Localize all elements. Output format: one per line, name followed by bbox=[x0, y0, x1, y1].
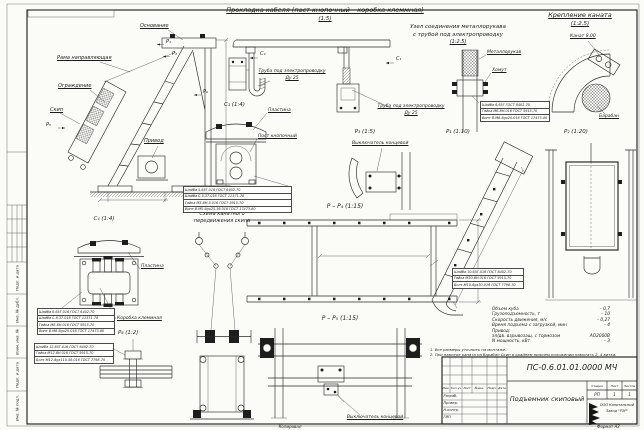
stamp-col-doc: №док. bbox=[475, 387, 485, 390]
view-title-p1: Р₁ (1:10) bbox=[446, 130, 470, 136]
doc-title: Подъемник скиповый bbox=[510, 396, 584, 403]
rope-mount-view bbox=[548, 41, 620, 114]
stage-col-listov: Листов bbox=[624, 385, 635, 388]
drive-label: Привод bbox=[144, 139, 164, 144]
sleeve-joint-scale: (1:2.5) bbox=[450, 40, 467, 45]
callout-row: Болт М10-6gх30.016 ГОСТ 7798-70 bbox=[453, 282, 523, 288]
notes: 1. Все размеры уточнить на монтаже. 2. П… bbox=[430, 347, 636, 357]
tech-value: – 3 bbox=[604, 339, 610, 344]
callout-table-box: Шайба 8.65Г.016 ГОСТ 6402-70 Шайба С.8.3… bbox=[37, 308, 115, 335]
limit-switch-label-2: Выключатель концевой bbox=[347, 416, 403, 421]
callout-row: Шайба 6.65Г ГОСТ 6402-70 bbox=[481, 102, 549, 109]
stamp-col-koluch: Кол.уч bbox=[451, 387, 461, 390]
button-post-label: Пост кнопочный bbox=[258, 135, 297, 140]
limit-switch-view bbox=[349, 148, 410, 210]
view-title-p6: Р₆ (1:2) bbox=[118, 331, 138, 337]
guide-frame-view bbox=[432, 142, 533, 315]
tube-label-a1: Труба под электропроводку bbox=[259, 70, 326, 75]
limit-switch-label-1: Выключатель концевой bbox=[352, 142, 408, 147]
stamp-row-gip: ГИП bbox=[444, 416, 451, 420]
callout-row: Шайба 10.65Г.016 ГОСТ 6402-70 bbox=[453, 269, 523, 276]
clamp-label: Хомут bbox=[492, 69, 507, 74]
metal-sleeve-label: Металлорукав bbox=[487, 51, 521, 56]
stamp-row-nkontr: Н.контр. bbox=[444, 409, 460, 413]
view-title-p3: Р₃ (1:5) bbox=[355, 130, 375, 136]
stage-val-list: 1 bbox=[613, 393, 616, 397]
callout-row: Болт М12-6gх110.58.016 ГОСТ 7798-70 bbox=[35, 357, 113, 363]
callout-row: Шайба С.8.37.016 ГОСТ 11371-78 bbox=[38, 316, 114, 323]
base-label: Основание bbox=[140, 24, 169, 29]
tube-label-b2: Ду 25 bbox=[404, 112, 417, 117]
callout-table-pp4: Шайба 10.65Г.016 ГОСТ 6402-70 Гайка М10-… bbox=[452, 268, 524, 289]
callout-row: Шайба 12.65Г.016 ГОСТ 6402-70 bbox=[35, 344, 113, 351]
scheme-title-2: передвижения скипа bbox=[194, 219, 250, 224]
stamp-row-prover: Провер. bbox=[444, 402, 459, 406]
view-title-p2: Р₂ (1:20) bbox=[564, 130, 588, 136]
callout-row: Гайка М5-6Н.5.016 ГОСТ 5915-70 bbox=[184, 200, 291, 207]
rope-mount-scale: (1:2.5) bbox=[571, 22, 589, 28]
callout-row: Шайба 8.65Г.016 ГОСТ 6402-70 bbox=[38, 309, 114, 316]
callout-table-sleeve: Шайба 6.65Г ГОСТ 6402-70 Гайка М6-6Н.016… bbox=[480, 101, 550, 122]
view-title-c1: С₁ (1:4) bbox=[224, 103, 245, 109]
button-post-view bbox=[206, 113, 288, 186]
section-pp5 bbox=[258, 328, 422, 418]
sleeve-joint-title-2: с трубой под электропроводку bbox=[413, 33, 503, 39]
drawing-sheet: Прокладка кабеля (пост кнопочный – короб… bbox=[0, 0, 644, 430]
plate-label-1: Пластина bbox=[268, 109, 291, 114]
side-stamp-cell: Взам. инв. № bbox=[15, 329, 20, 355]
mark-p6: Р₆ bbox=[203, 90, 208, 95]
fence-label: Ограждение bbox=[58, 84, 91, 89]
cable-run-title: Прокладка кабеля (пост кнопочный – короб… bbox=[226, 7, 424, 14]
side-stamp-cell: Инв. № дубл. bbox=[15, 297, 20, 323]
tech-value: – 4 bbox=[604, 323, 610, 328]
callout-row: Винт В.М6-6gх20.016 ГОСТ 17473-80 bbox=[481, 115, 549, 121]
stage-col-stadiya: Стадия bbox=[591, 385, 603, 388]
format-label: Формат А2 bbox=[597, 425, 620, 429]
cable-run-view bbox=[229, 40, 394, 112]
view-title-pp4: Р – Р₄ (1:15) bbox=[327, 204, 364, 210]
stamp-col-izm: Изм. bbox=[442, 387, 449, 390]
callout-row: Винт В.М8-6gх20.016 ГОСТ 17473-80 bbox=[38, 329, 114, 335]
callout-row: Гайка М10-6Н.016 ГОСТ 5915-70 bbox=[453, 276, 523, 283]
tube-label-a2: Ду 25 bbox=[285, 77, 298, 82]
tube-label-b1: Труба под электропроводку bbox=[378, 105, 445, 110]
mark-p1: Р₁ bbox=[166, 40, 171, 45]
callout-row: Гайка М8-6Н.016 ГОСТ 5915-70 bbox=[38, 322, 114, 329]
drum-label: Барабан bbox=[599, 115, 619, 120]
plate-label-2: Пластина bbox=[141, 265, 164, 270]
callout-row: Гайка М6-6Н.016 ГОСТ 5915-70 bbox=[481, 109, 549, 116]
sleeve-joint-title-1: Узел соединения металлорукава bbox=[410, 25, 506, 31]
callout-row: Шайба 5.65Г.016 ГОСТ 6402-70 bbox=[184, 187, 291, 194]
mark-p5: Р₅ bbox=[46, 123, 51, 128]
rope-scheme-view bbox=[190, 232, 254, 419]
view-title-c4: С₄ (1:4) bbox=[94, 217, 115, 223]
company-name-1: ООО Капитальный bbox=[600, 404, 634, 408]
stamp-row-razrab: Разраб. bbox=[444, 395, 458, 399]
stamp-col-list: Лист bbox=[463, 387, 471, 390]
note-line: 2. При намотке каната на барабан Скип в … bbox=[430, 352, 636, 357]
callout-table-bolt: Шайба 12.65Г.016 ГОСТ 6402-70 Гайка М12-… bbox=[34, 343, 114, 364]
side-stamp-cell: Подп. и дата bbox=[15, 362, 20, 388]
side-stamp-cell: Инв. № подл. bbox=[15, 394, 20, 420]
company-name-2: Завод "РЭР" bbox=[606, 410, 628, 414]
side-stamp-cell: Подп. и дата bbox=[15, 265, 20, 291]
tech-label: N мощность, кВт bbox=[492, 339, 530, 344]
skip-label: Скип bbox=[50, 108, 63, 113]
doc-number: ПС-0.6.01.01.0000 МЧ bbox=[527, 364, 618, 372]
guide-frame-label: Рама направляющая bbox=[57, 56, 112, 61]
section-pp4 bbox=[247, 214, 481, 304]
tech-characteristics: Объем куба– 0,7 Грузоподъемность, т– 10 … bbox=[492, 307, 610, 345]
cable-run-scale: (1:5) bbox=[318, 17, 331, 23]
mark-c4: С₄ bbox=[260, 52, 266, 57]
stamp-col-podp: Подп. bbox=[487, 387, 496, 390]
stage-col-list: Лист bbox=[611, 385, 619, 388]
copied-label: Копировал bbox=[279, 425, 302, 429]
rope-label: Канат 8.00 bbox=[570, 35, 596, 40]
mark-p2: Р₂ bbox=[172, 52, 177, 57]
stage-val-listov: 1 bbox=[628, 393, 631, 397]
shaft-view bbox=[545, 143, 637, 300]
stage-val-stadiya: РП bbox=[594, 393, 599, 397]
callout-row: Гайка М12-6Н.016 ГОСТ 5915-70 bbox=[35, 351, 113, 358]
mark-c1: С₁ bbox=[396, 57, 402, 62]
rope-mount-title: Крепление каната bbox=[548, 12, 612, 19]
callout-row: Винт В.М5-6gх25.36.016 ГОСТ 17473-80 bbox=[184, 207, 291, 213]
stamp-col-data: Дата bbox=[498, 387, 506, 390]
terminal-box-label: Коробка клеммная bbox=[117, 317, 162, 322]
view-title-pp5: Р – Р₅ (1:15) bbox=[322, 316, 359, 322]
callout-table-post: Шайба 5.65Г.016 ГОСТ 6402-70 Шайба С.5.3… bbox=[183, 186, 292, 213]
callout-row: Шайба С.5.37.016 ГОСТ 11371-78 bbox=[184, 194, 291, 201]
